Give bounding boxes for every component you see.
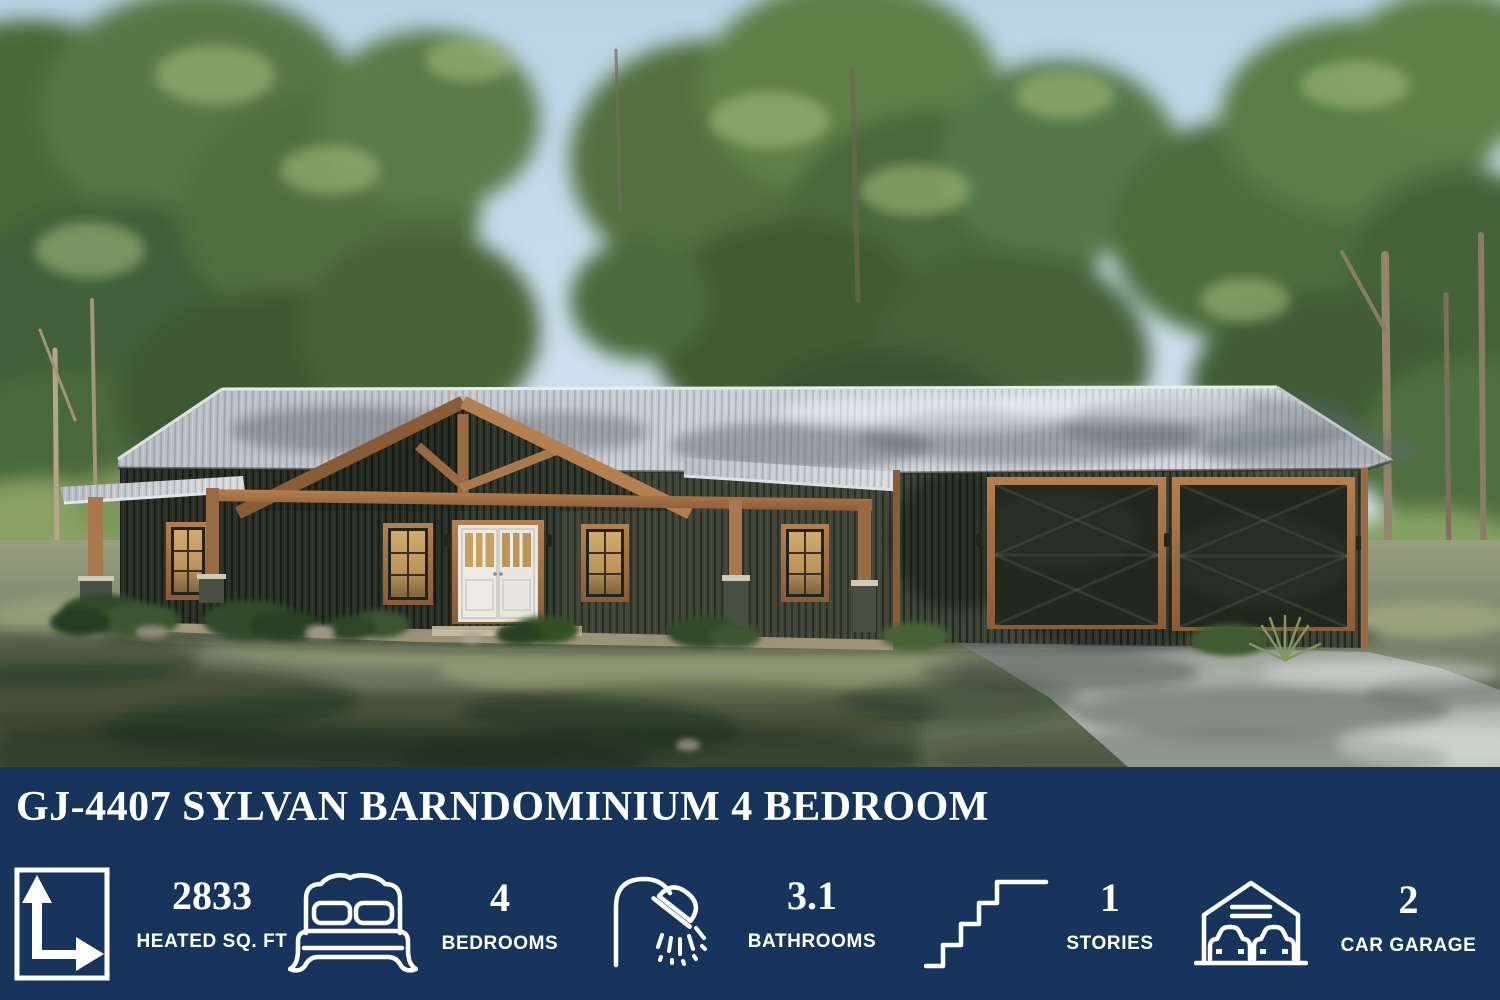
square-feet-dimension-icon bbox=[14, 867, 110, 981]
bed-icon bbox=[288, 869, 418, 975]
stat-heated-sqft: 2833 HEATED SQ. FT bbox=[14, 867, 304, 987]
door-sconce-right bbox=[546, 534, 552, 547]
stat-value-garage: 2 bbox=[1326, 879, 1491, 921]
front-door bbox=[444, 520, 552, 624]
stat-label-stories: STORIES bbox=[1050, 933, 1170, 955]
door-sconce-left bbox=[444, 534, 450, 547]
stat-value-bathrooms: 3.1 bbox=[732, 875, 892, 917]
stat-label-bathrooms: BATHROOMS bbox=[732, 931, 892, 953]
page-title: GJ-4407 SYLVAN BARNDOMINIUM 4 BEDROOM bbox=[16, 783, 989, 831]
garage-sconce-2 bbox=[1164, 533, 1170, 547]
stat-label-garage: CAR GARAGE bbox=[1326, 935, 1491, 957]
listing-graphic: GJ-4407 SYLVAN BARNDOMINIUM 4 BEDROOM 28… bbox=[0, 0, 1500, 1000]
stat-bedrooms: 4 BEDROOMS bbox=[288, 869, 578, 989]
garage-corner-trim-right bbox=[1361, 468, 1368, 648]
stat-value-sqft: 2833 bbox=[122, 875, 302, 917]
window-left-of-door bbox=[383, 523, 433, 605]
info-banner: GJ-4407 SYLVAN BARNDOMINIUM 4 BEDROOM 28… bbox=[0, 767, 1500, 1000]
stat-value-stories: 1 bbox=[1050, 877, 1170, 919]
foreground-grass-shade bbox=[0, 722, 920, 767]
stat-stories: 1 STORIES bbox=[924, 873, 1174, 993]
stairs-icon bbox=[924, 873, 1050, 969]
shower-icon bbox=[604, 867, 710, 969]
window-right-of-door bbox=[581, 524, 629, 602]
house-render-svg bbox=[0, 0, 1500, 767]
garage-sconce-1 bbox=[976, 533, 982, 547]
stat-value-bedrooms: 4 bbox=[430, 877, 570, 919]
house-render bbox=[0, 0, 1500, 767]
window-far-right bbox=[781, 524, 829, 602]
stat-label-bedrooms: BEDROOMS bbox=[430, 933, 570, 955]
roof bbox=[118, 387, 1420, 473]
garage-corner-trim-left bbox=[893, 470, 900, 642]
stat-car-garage: 2 CAR GARAGE bbox=[1194, 871, 1494, 991]
garage-cars-icon bbox=[1194, 871, 1308, 969]
stat-bathrooms: 3.1 BATHROOMS bbox=[604, 867, 894, 987]
stat-label-sqft: HEATED SQ. FT bbox=[122, 931, 302, 953]
